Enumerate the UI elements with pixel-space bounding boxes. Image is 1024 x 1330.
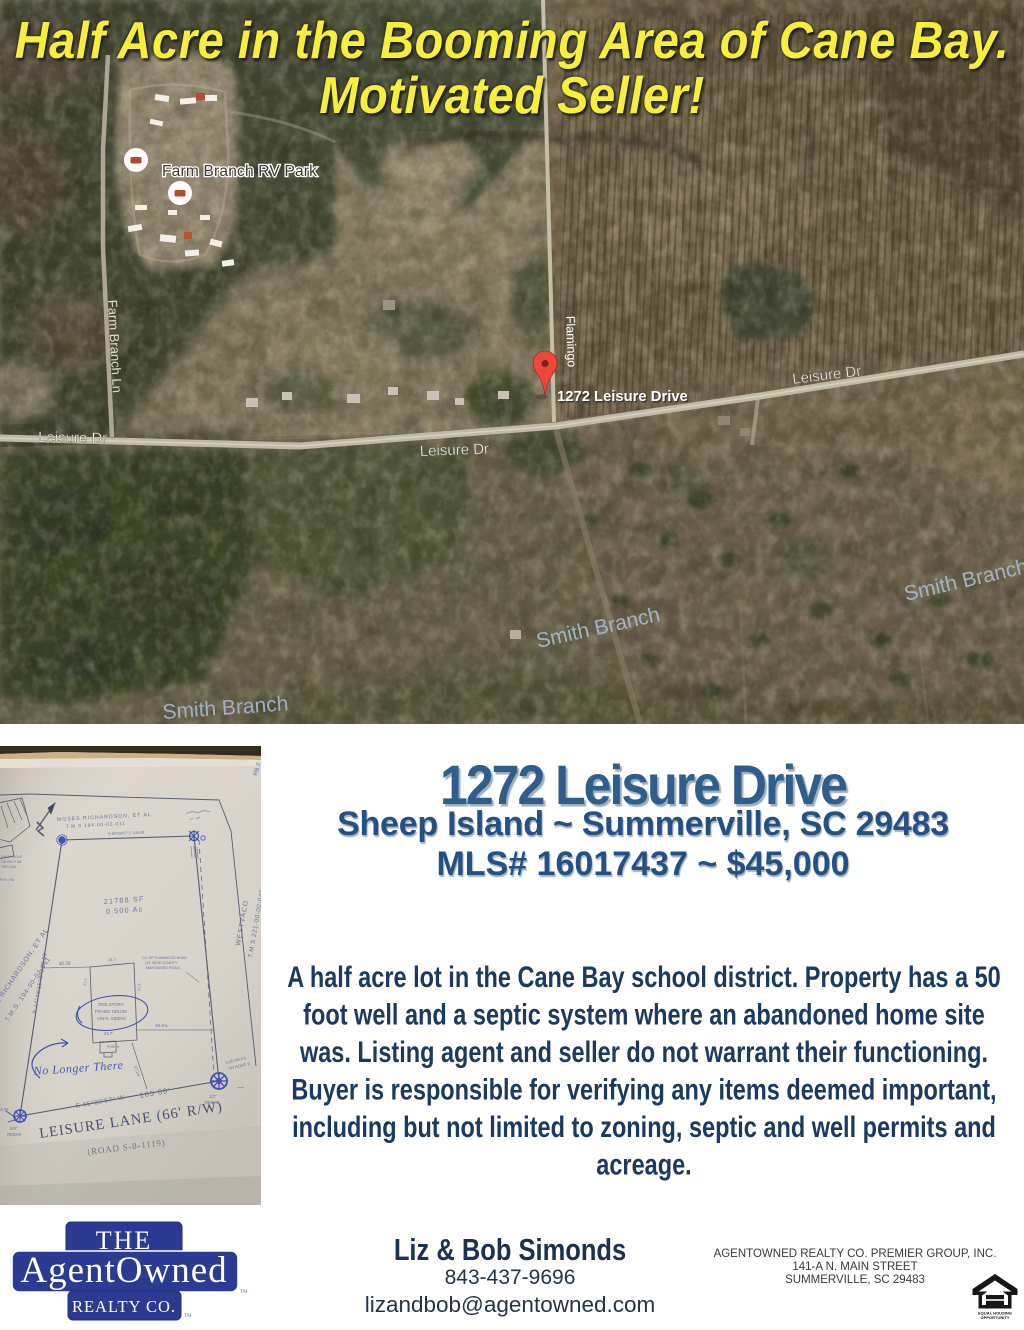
svg-text:TM: TM: [184, 1314, 192, 1319]
svg-text:21.9: 21.9: [83, 978, 88, 986]
svg-text:Leisure Dr: Leisure Dr: [38, 429, 107, 447]
svg-text:1/2": 1/2": [209, 1094, 217, 1099]
svg-text:MARY COLE: MARY COLE: [1, 855, 23, 859]
svg-text:PORCH: PORCH: [107, 1045, 120, 1049]
svg-text:24.7': 24.7': [108, 957, 117, 962]
svg-text:45.9'a: 45.9'a: [155, 1023, 168, 1028]
svg-text:PLS x 98: PLS x 98: [0, 878, 14, 882]
svg-text:(10' WIDE COUNTY: (10' WIDE COUNTY: [145, 961, 178, 965]
svg-text:ONE STORY: ONE STORY: [98, 1002, 124, 1007]
svg-text:OPPORTUNITY: OPPORTUNITY: [981, 1315, 1010, 1320]
svg-text:Leisure Dr: Leisure Dr: [420, 441, 490, 460]
svg-text:S W: S W: [0, 1107, 8, 1112]
svg-text:VINYL SIDING: VINYL SIDING: [97, 1016, 126, 1021]
svg-text:—: —: [237, 1084, 244, 1091]
svg-text:Farm Branch RV Park: Farm Branch RV Park: [162, 163, 317, 180]
svg-text:REBAR: REBAR: [7, 1132, 21, 1137]
svg-text:FRAME HOUSE: FRAME HOUSE: [95, 1009, 127, 1014]
svg-text:Flamingo: Flamingo: [563, 316, 579, 368]
svg-text:MAINTAINED ROAD): MAINTAINED ROAD): [146, 966, 180, 970]
svg-text:DB 234 P 88: DB 234 P 88: [1, 860, 21, 864]
svg-text:REALTY CO.: REALTY CO.: [72, 1297, 176, 1316]
svg-text:TM: TM: [240, 1290, 248, 1295]
svg-text:5/8": 5/8": [10, 1126, 18, 1131]
svg-text:30.29: 30.29: [59, 960, 71, 966]
svg-text:24.7': 24.7': [104, 1031, 113, 1036]
svg-text:21.9: 21.9: [137, 983, 142, 991]
svg-text:TMS 194: TMS 194: [1, 865, 16, 869]
svg-text:AgentOwned: AgentOwned: [20, 1250, 227, 1291]
svg-text:1272 Leisure Drive: 1272 Leisure Drive: [557, 389, 688, 405]
svg-text:C/L OF FLAMWOOD ROAD: C/L OF FLAMWOOD ROAD: [142, 956, 187, 960]
